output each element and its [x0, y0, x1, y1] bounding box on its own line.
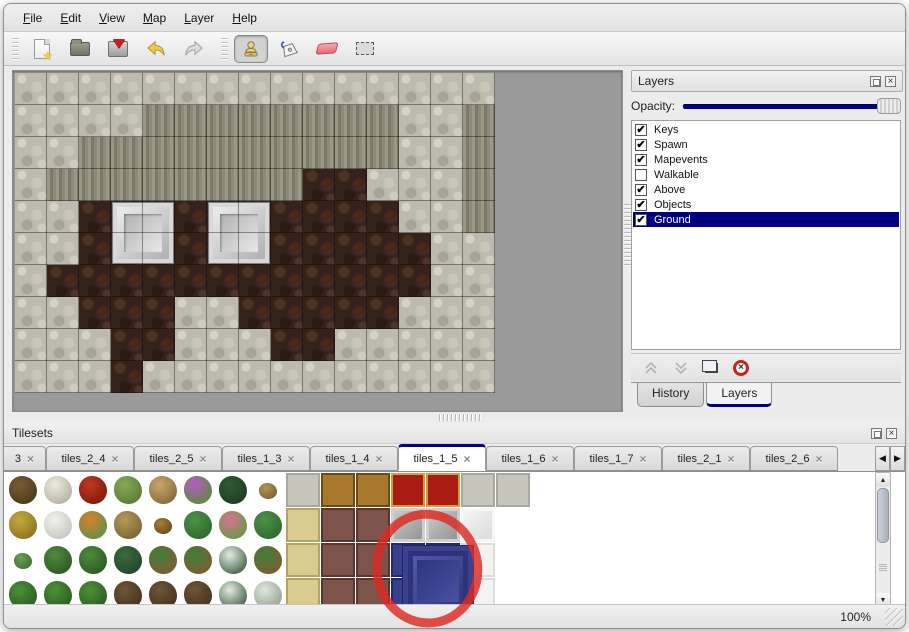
tileset-tile-pm[interactable]: [251, 543, 286, 578]
map-tile[interactable]: [271, 105, 303, 137]
menu-bar: FileEditViewMapLayerHelp: [4, 4, 905, 32]
tileset-tile-SL[interactable]: [426, 508, 461, 543]
map-tile[interactable]: [335, 201, 367, 233]
layers-panel-title: Layers: [638, 74, 674, 88]
map-tile[interactable]: [79, 265, 111, 297]
layer-list: ✔Keys✔Spawn✔MapeventsWalkable✔Above✔Obje…: [631, 120, 901, 350]
map-tile[interactable]: [47, 105, 79, 137]
map-tile[interactable]: [431, 265, 463, 297]
tab-close-icon[interactable]: ×: [464, 452, 471, 466]
map-tile[interactable]: [239, 137, 271, 169]
layer-visibility-checkbox[interactable]: ✔: [635, 124, 647, 136]
tab-label: tiles_2_1: [677, 453, 721, 465]
map-tile[interactable]: [399, 169, 431, 201]
map-tile[interactable]: [431, 169, 463, 201]
tilesets-float-icon[interactable]: [871, 428, 882, 439]
map-tile[interactable]: [175, 233, 207, 265]
map-tile[interactable]: [271, 265, 303, 297]
map-tile[interactable]: [175, 329, 207, 361]
delete-layer-button[interactable]: ×: [731, 358, 751, 378]
tileset-tile-hy[interactable]: [6, 508, 41, 543]
tileset-scrollbar[interactable]: ▲ ▼: [875, 472, 891, 608]
tilesets-close-icon[interactable]: ×: [886, 428, 897, 439]
layer-row-keys[interactable]: ✔Keys: [633, 122, 899, 137]
tileset-tile-wd[interactable]: [251, 473, 286, 508]
map-tile[interactable]: [239, 105, 271, 137]
close-panel-icon[interactable]: ×: [885, 76, 896, 87]
map-tile[interactable]: [335, 361, 367, 393]
map-tile[interactable]: [15, 233, 47, 265]
map-tile[interactable]: [79, 201, 111, 233]
tab-label: tiles_1_4: [325, 453, 369, 465]
map-tile[interactable]: [367, 137, 399, 169]
map-tile[interactable]: [111, 73, 143, 105]
map-tile[interactable]: [399, 73, 431, 105]
tab-close-icon[interactable]: ×: [376, 452, 383, 466]
tab-label: tiles_1_5: [413, 453, 457, 465]
map-tile[interactable]: [367, 329, 399, 361]
tab-close-icon[interactable]: ×: [288, 452, 295, 466]
map-tile[interactable]: [111, 265, 143, 297]
map-tile[interactable]: [335, 329, 367, 361]
map-tile[interactable]: [271, 329, 303, 361]
map-tile[interactable]: [431, 233, 463, 265]
map-tile[interactable]: [399, 361, 431, 393]
tileset-tile-fl[interactable]: [76, 473, 111, 508]
map-tile[interactable]: [79, 105, 111, 137]
map-tile[interactable]: [335, 105, 367, 137]
map-tile[interactable]: [207, 297, 239, 329]
map-tile[interactable]: [367, 73, 399, 105]
map-tile[interactable]: [175, 361, 207, 393]
tab-label: tiles_1_6: [501, 453, 545, 465]
tileset-tab-tiles_1_4[interactable]: tiles_1_4×: [310, 446, 398, 471]
map-tile[interactable]: [303, 297, 335, 329]
tileset-tile-lp[interactable]: [251, 508, 286, 543]
map-tile[interactable]: [431, 361, 463, 393]
map-tile[interactable]: [271, 233, 303, 265]
map-tile[interactable]: [143, 265, 175, 297]
selection-icon: [356, 42, 374, 55]
layer-row-mapevents[interactable]: ✔Mapevents: [633, 152, 899, 167]
map-tile[interactable]: [271, 201, 303, 233]
map-tile[interactable]: [335, 73, 367, 105]
map-tile[interactable]: [399, 265, 431, 297]
map-tile[interactable]: [79, 361, 111, 393]
map-tile[interactable]: [47, 329, 79, 361]
duplicate-icon: [705, 363, 718, 373]
undo-icon: [145, 40, 167, 58]
menu-file[interactable]: File: [14, 7, 51, 29]
tileset-tile-py[interactable]: [216, 543, 251, 578]
tileset-tile-sn[interactable]: [41, 508, 76, 543]
map-tile[interactable]: [271, 137, 303, 169]
horizontal-splitter-handle[interactable]: [437, 414, 483, 421]
map-tile[interactable]: [463, 201, 495, 233]
door-tile[interactable]: [112, 202, 174, 264]
map-tile[interactable]: [207, 137, 239, 169]
map-tile[interactable]: [271, 169, 303, 201]
zoom-level: 100%: [840, 610, 871, 624]
selected-blue-tile[interactable]: [402, 545, 474, 609]
map-canvas[interactable]: [12, 70, 623, 412]
tab-label: tiles_1_3: [237, 453, 281, 465]
tileset-tile-SN[interactable]: [286, 473, 321, 508]
map-tile[interactable]: [431, 297, 463, 329]
layer-visibility-checkbox[interactable]: ✔: [635, 199, 647, 211]
tileset-tile-pm[interactable]: [181, 543, 216, 578]
eraser-icon: [315, 42, 338, 54]
tileset-tile-KH[interactable]: [286, 543, 321, 578]
map-tile[interactable]: [143, 169, 175, 201]
tilesets-title: Tilesets: [12, 426, 53, 440]
map-tile[interactable]: [15, 265, 47, 297]
map-tile[interactable]: [335, 233, 367, 265]
map-tile[interactable]: [111, 297, 143, 329]
tileset-tile-w[interactable]: [496, 508, 531, 543]
tileset-tile-fe[interactable]: [216, 473, 251, 508]
layer-row-above[interactable]: ✔Above: [633, 182, 899, 197]
tileset-tile-SL[interactable]: [391, 508, 426, 543]
toolbar: ★: [4, 32, 905, 66]
chevron-up-icon: [644, 361, 658, 375]
menu-help[interactable]: Help: [223, 7, 266, 29]
scrollbar-thumb[interactable]: [877, 488, 889, 543]
map-tile[interactable]: [367, 233, 399, 265]
layers-panel: Layers × Opacity: ✔Keys✔Spawn✔MapeventsW…: [631, 70, 903, 412]
map-tile[interactable]: [239, 265, 271, 297]
duplicate-layer-button[interactable]: [701, 358, 721, 378]
vertical-splitter-handle[interactable]: [624, 202, 631, 266]
tileset-tile-pk[interactable]: [216, 508, 251, 543]
layer-name: Above: [654, 184, 685, 196]
map-tile[interactable]: [463, 329, 495, 361]
map-tile[interactable]: [399, 137, 431, 169]
tab-close-icon[interactable]: ×: [728, 452, 735, 466]
map-tile[interactable]: [47, 233, 79, 265]
map-tile[interactable]: [47, 137, 79, 169]
tab-close-icon[interactable]: ×: [112, 452, 119, 466]
map-tile[interactable]: [79, 137, 111, 169]
map-tile[interactable]: [463, 233, 495, 265]
map-tile[interactable]: [335, 297, 367, 329]
map-tile[interactable]: [367, 169, 399, 201]
map-tile[interactable]: [303, 233, 335, 265]
map-tile[interactable]: [207, 265, 239, 297]
map-tile[interactable]: [463, 297, 495, 329]
map-tile[interactable]: [15, 297, 47, 329]
tileset-tile-t1[interactable]: [6, 473, 41, 508]
tileset-tile-bu[interactable]: [41, 543, 76, 578]
tab-close-icon[interactable]: ×: [200, 452, 207, 466]
map-tile[interactable]: [399, 297, 431, 329]
tileset-tab-3[interactable]: 3×: [4, 446, 46, 471]
tileset-tile-TB[interactable]: [321, 473, 356, 508]
map-tile[interactable]: [239, 73, 271, 105]
layer-visibility-checkbox[interactable]: ✔: [635, 139, 647, 151]
map-tile[interactable]: [431, 105, 463, 137]
layer-name: Keys: [654, 124, 678, 136]
open-folder-icon: [70, 42, 90, 56]
map-tile[interactable]: [175, 105, 207, 137]
tab-label: tiles_1_7: [589, 453, 633, 465]
map-tile[interactable]: [399, 233, 431, 265]
map-tile[interactable]: [463, 361, 495, 393]
map-tile[interactable]: [367, 105, 399, 137]
map-tile[interactable]: [207, 361, 239, 393]
tileset-tile-SN[interactable]: [461, 473, 496, 508]
tileset-tab-tiles_1_7[interactable]: tiles_1_7×: [574, 446, 662, 471]
map-tile[interactable]: [303, 265, 335, 297]
map-tile[interactable]: [175, 137, 207, 169]
map-tile[interactable]: [207, 73, 239, 105]
map-tile[interactable]: [143, 73, 175, 105]
opacity-slider[interactable]: [683, 98, 901, 114]
map-tile[interactable]: [463, 73, 495, 105]
open-button[interactable]: [63, 35, 97, 63]
map-tile[interactable]: [431, 137, 463, 169]
map-tile[interactable]: [367, 265, 399, 297]
eraser-tool-button[interactable]: [310, 35, 344, 63]
map-tile[interactable]: [79, 233, 111, 265]
map-tile[interactable]: [15, 201, 47, 233]
menu-map[interactable]: Map: [134, 7, 175, 29]
new-file-icon: ★: [34, 39, 50, 59]
map-tile[interactable]: [271, 297, 303, 329]
map-tile[interactable]: [111, 169, 143, 201]
tileset-tile-pm[interactable]: [146, 543, 181, 578]
opacity-slider-track: [683, 104, 901, 109]
map-tile[interactable]: [143, 105, 175, 137]
map-tile[interactable]: [47, 361, 79, 393]
map-tiles[interactable]: [15, 73, 495, 393]
map-tile[interactable]: [239, 169, 271, 201]
tileset-view[interactable]: [4, 471, 905, 609]
map-tile[interactable]: [463, 265, 495, 297]
layer-row-spawn[interactable]: ✔Spawn: [633, 137, 899, 152]
layer-row-ground[interactable]: ✔Ground: [633, 212, 899, 227]
map-tile[interactable]: [207, 329, 239, 361]
map-tile[interactable]: [111, 361, 143, 393]
tileset-tab-tiles_2_4[interactable]: tiles_2_4×: [46, 446, 134, 471]
map-tile[interactable]: [335, 265, 367, 297]
dock-tab-layers[interactable]: Layers: [706, 383, 772, 407]
map-tile[interactable]: [15, 329, 47, 361]
layer-name: Spawn: [654, 139, 688, 151]
map-tile[interactable]: [15, 105, 47, 137]
map-tile[interactable]: [335, 137, 367, 169]
dock-tab-history[interactable]: History: [637, 383, 704, 407]
map-tile[interactable]: [431, 329, 463, 361]
map-tile[interactable]: [367, 201, 399, 233]
chevron-down-icon: [674, 361, 688, 375]
layer-name: Walkable: [654, 169, 699, 181]
tileset-tile-tr[interactable]: [146, 473, 181, 508]
tilesets-header: Tilesets ×: [4, 423, 905, 444]
map-tile[interactable]: [175, 265, 207, 297]
tileset-tile-bd[interactable]: [111, 543, 146, 578]
tileset-tile-dg[interactable]: [111, 508, 146, 543]
map-tile[interactable]: [463, 169, 495, 201]
move-layer-down-button[interactable]: [671, 358, 691, 378]
map-tile[interactable]: [239, 361, 271, 393]
save-button[interactable]: [101, 35, 135, 63]
map-tile[interactable]: [47, 297, 79, 329]
map-tile[interactable]: [79, 73, 111, 105]
map-tile[interactable]: [271, 361, 303, 393]
tileset-tab-tiles_1_6[interactable]: tiles_1_6×: [486, 446, 574, 471]
menu-layer[interactable]: Layer: [175, 7, 223, 29]
map-tile[interactable]: [239, 329, 271, 361]
tileset-tile-TB[interactable]: [356, 473, 391, 508]
map-tile[interactable]: [239, 297, 271, 329]
save-icon: [108, 41, 128, 57]
tab-label: tiles_2_6: [765, 453, 809, 465]
tileset-tile-lp[interactable]: [181, 508, 216, 543]
tileset-tab-tiles_1_3[interactable]: tiles_1_3×: [222, 446, 310, 471]
new-file-button[interactable]: ★: [25, 35, 59, 63]
tileset-tile-st[interactable]: [111, 473, 146, 508]
layer-row-walkable[interactable]: Walkable: [633, 167, 899, 182]
undo-button[interactable]: [139, 35, 173, 63]
layer-visibility-checkbox[interactable]: ✔: [635, 214, 647, 226]
map-tile[interactable]: [79, 169, 111, 201]
map-tile[interactable]: [15, 137, 47, 169]
tab-close-icon[interactable]: ×: [552, 452, 559, 466]
layer-row-objects[interactable]: ✔Objects: [633, 197, 899, 212]
map-tile[interactable]: [15, 361, 47, 393]
layer-visibility-checkbox[interactable]: [635, 169, 647, 181]
map-tile[interactable]: [175, 73, 207, 105]
float-panel-icon[interactable]: [870, 76, 881, 87]
map-tile[interactable]: [367, 297, 399, 329]
fill-tool-icon: [278, 39, 300, 59]
tileset-tile-MR[interactable]: [356, 543, 391, 578]
scroll-up-button[interactable]: ▲: [876, 473, 890, 487]
toolbar-drag-handle[interactable]: [12, 36, 19, 62]
map-tile[interactable]: [175, 297, 207, 329]
resize-grip[interactable]: [885, 608, 903, 626]
tileset-tile-SN[interactable]: [496, 473, 531, 508]
tileset-tile-RC[interactable]: [391, 473, 426, 508]
tileset-tile-sp[interactable]: [6, 543, 41, 578]
map-tile[interactable]: [303, 361, 335, 393]
stamp-tool-button[interactable]: [234, 35, 268, 63]
tileset-tab-tiles_2_1[interactable]: tiles_2_1×: [662, 446, 750, 471]
scroll-tabs-left-button[interactable]: ◀: [875, 446, 890, 471]
tab-close-icon[interactable]: ×: [816, 452, 823, 466]
map-tile[interactable]: [79, 329, 111, 361]
map-tile[interactable]: [463, 137, 495, 169]
map-tile[interactable]: [175, 169, 207, 201]
tab-label: 3: [15, 453, 21, 465]
map-tile[interactable]: [399, 105, 431, 137]
dock-tabs: HistoryLayers: [631, 382, 901, 412]
layer-actions: ×: [631, 353, 901, 381]
map-tile[interactable]: [303, 169, 335, 201]
stamp-tool-icon: [241, 39, 261, 59]
tileset-tile-of[interactable]: [76, 508, 111, 543]
opacity-slider-handle[interactable]: [877, 98, 901, 114]
map-tile[interactable]: [79, 297, 111, 329]
tileset-tab-tiles_2_5[interactable]: tiles_2_5×: [134, 446, 222, 471]
map-tile[interactable]: [143, 137, 175, 169]
fill-tool-button[interactable]: [272, 35, 306, 63]
map-tile[interactable]: [367, 361, 399, 393]
map-tile[interactable]: [47, 265, 79, 297]
tilesets-panel: Tilesets × 3×tiles_2_4×tiles_2_5×tiles_1…: [4, 423, 905, 628]
map-tile[interactable]: [15, 73, 47, 105]
map-tile[interactable]: [15, 169, 47, 201]
map-tile[interactable]: [47, 73, 79, 105]
tab-label: tiles_2_4: [61, 453, 105, 465]
tileset-tile-lv[interactable]: [146, 508, 181, 543]
map-tile[interactable]: [111, 329, 143, 361]
map-tile[interactable]: [143, 297, 175, 329]
tileset-tile-MR[interactable]: [356, 508, 391, 543]
map-tile[interactable]: [143, 361, 175, 393]
scroll-tabs-right-button[interactable]: ▶: [890, 446, 905, 471]
tileset-tab-tiles_2_6[interactable]: tiles_2_6×: [750, 446, 838, 471]
map-tile[interactable]: [303, 137, 335, 169]
tileset-tile-bu[interactable]: [76, 543, 111, 578]
toolbar-drag-handle-2[interactable]: [221, 36, 228, 62]
map-tile[interactable]: [175, 201, 207, 233]
select-tool-button[interactable]: [348, 35, 382, 63]
move-layer-up-button[interactable]: [641, 358, 661, 378]
map-tile[interactable]: [207, 169, 239, 201]
tileset-tab-tiles_1_5[interactable]: tiles_1_5×: [398, 444, 486, 471]
tab-close-icon[interactable]: ×: [27, 452, 34, 466]
map-tile[interactable]: [431, 201, 463, 233]
redo-button[interactable]: [177, 35, 211, 63]
map-tile[interactable]: [399, 201, 431, 233]
map-tile[interactable]: [431, 73, 463, 105]
menu-edit[interactable]: Edit: [51, 7, 90, 29]
map-tile[interactable]: [111, 137, 143, 169]
layer-visibility-checkbox[interactable]: ✔: [635, 184, 647, 196]
tab-close-icon[interactable]: ×: [640, 452, 647, 466]
tileset-tile-MR[interactable]: [321, 508, 356, 543]
map-tile[interactable]: [303, 105, 335, 137]
tileset-tile-RC[interactable]: [426, 473, 461, 508]
scrollbar-grip: [879, 563, 887, 571]
tileset-tile-MR[interactable]: [321, 543, 356, 578]
door-tile[interactable]: [208, 202, 270, 264]
map-tile[interactable]: [303, 201, 335, 233]
tileset-tile-t2[interactable]: [41, 473, 76, 508]
map-tile[interactable]: [271, 73, 303, 105]
tileset-tile-w[interactable]: [496, 543, 531, 578]
tileset-tile-KH[interactable]: [286, 508, 321, 543]
map-tile[interactable]: [303, 73, 335, 105]
map-tile[interactable]: [207, 105, 239, 137]
map-tile[interactable]: [111, 105, 143, 137]
tileset-tile-pf[interactable]: [181, 473, 216, 508]
menu-view[interactable]: View: [90, 7, 134, 29]
map-tile[interactable]: [303, 329, 335, 361]
layer-visibility-checkbox[interactable]: ✔: [635, 154, 647, 166]
tileset-cells[interactable]: [6, 473, 531, 609]
map-tile[interactable]: [47, 169, 79, 201]
map-tile[interactable]: [143, 329, 175, 361]
layer-name: Objects: [654, 199, 691, 211]
tileset-tile-WB[interactable]: [461, 508, 496, 543]
map-tile[interactable]: [335, 169, 367, 201]
map-tile[interactable]: [399, 329, 431, 361]
map-tile[interactable]: [463, 105, 495, 137]
map-tile[interactable]: [47, 201, 79, 233]
